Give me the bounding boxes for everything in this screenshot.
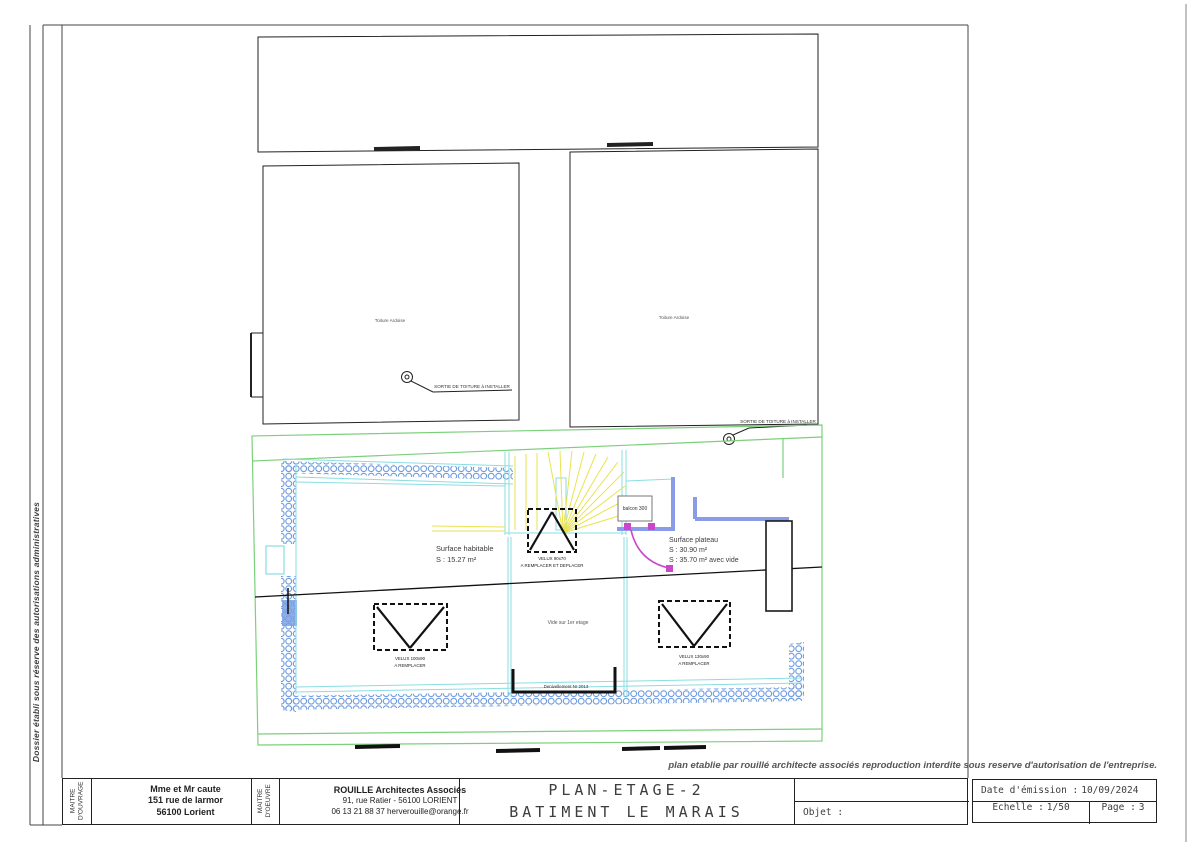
maitre-ouvrage-l2: D'OUVRAGE [77,782,84,820]
velux-stair-label-2: A REMPLACER ET DEPLACER [521,563,584,568]
surface-plateau-value1: S : 30.90 m² [669,547,708,554]
surface-habitable-title: Surface habitable [436,544,494,553]
maitre-ouvrage-l1: MAITRE [69,789,76,814]
roof-exit-label-2: SORTIE DE TOITURE à INSTALLER [740,419,816,424]
tb-objet-divider [794,801,969,802]
bottom-opening-tabs [355,746,706,751]
drawing-sheet: Toiture Ardoise Toiture Ardoise SORTIE D… [0,0,1191,842]
emission-date-value: 10/09/2024 [1081,785,1138,796]
maitre-ouvrage-label: MAITRE D'OUVRAGE [63,779,91,823]
scale: Echelle : 1/50 [973,802,1089,813]
section-line [255,567,822,614]
toiture-right-label: Toiture Ardoise [659,315,690,320]
roof-tab-left [374,148,420,149]
scale-label: Echelle : [992,802,1043,813]
roof-block [251,34,818,427]
roof-exit-label-1: SORTIE DE TOITURE à INSTALLER [434,384,510,389]
side-note-text: Dossier établi sous réserve des autorisa… [32,502,42,762]
objet-label: Objet : [803,807,843,818]
surface-habitable-value: S : 15.27 m² [436,555,477,564]
velux-left-label-1: VELUX 100x90 [395,656,426,661]
conduit-rect [766,521,792,611]
balcon-label: balcon 300 [623,506,648,512]
drawing-title-line1: PLAN-ETAGE-2 [460,779,793,802]
page-number: Page : 3 [1089,802,1157,813]
left-bay-window [266,546,284,574]
emission-date: Date d'émission : 10/09/2024 [973,780,1164,801]
emission-date-label: Date d'émission : [981,785,1078,796]
velux-stair-label-1: VELUX 90x70 [538,556,566,561]
maitre-oeuvre-label: MAITRE D'OEUVRE [251,779,279,823]
title-block: MAITRE D'OUVRAGE Mme et Mr caute 151 rue… [62,778,968,825]
page-number-value: 3 [1139,802,1145,813]
interior-lining [283,450,802,697]
page-number-label: Page : [1101,802,1135,813]
drawing-title-line2: BATIMENT LE MARAIS [460,801,793,824]
velux-right [659,601,730,647]
velux-right-label-2: A REMPLACER [678,661,709,666]
velux-stair [528,509,576,552]
left-wall-blue-panel [282,600,297,626]
scale-value: 1/50 [1047,802,1070,813]
toiture-left-label: Toiture Ardoise [375,318,406,323]
roof-tab-right [607,144,653,145]
drawing-title: PLAN-ETAGE-2 BATIMENT LE MARAIS [460,779,793,823]
insulated-walls [281,461,804,712]
velux-right-label-1: VELUX 130x90 [679,654,710,659]
copyright-disclaimer: plan etablie par rouillé architecte asso… [640,760,1157,771]
side-note-strip: Dossier établi sous réserve des autorisa… [30,486,43,778]
velux-left [374,604,447,650]
maitre-oeuvre-l2: D'OEUVRE [265,784,272,817]
surface-plateau-title: Surface plateau [669,537,718,544]
guardrail-label: Denivellement Nr 2013 [544,684,589,689]
roof-room-right [570,149,818,427]
title-block-meta: Date d'émission : 10/09/2024 Echelle : 1… [972,779,1157,823]
surface-plateau-value2: S : 35.70 m² avec vide [669,557,739,564]
maitre-oeuvre-l1: MAITRE [257,789,264,814]
roof-exit-callout-2 [724,425,808,445]
floor-plan-canvas: Toiture Ardoise Toiture Ardoise SORTIE D… [0,0,1191,842]
velux-left-label-2: A REMPLACER [394,663,425,668]
vide-label: Vide sur 1er etage [548,620,589,626]
